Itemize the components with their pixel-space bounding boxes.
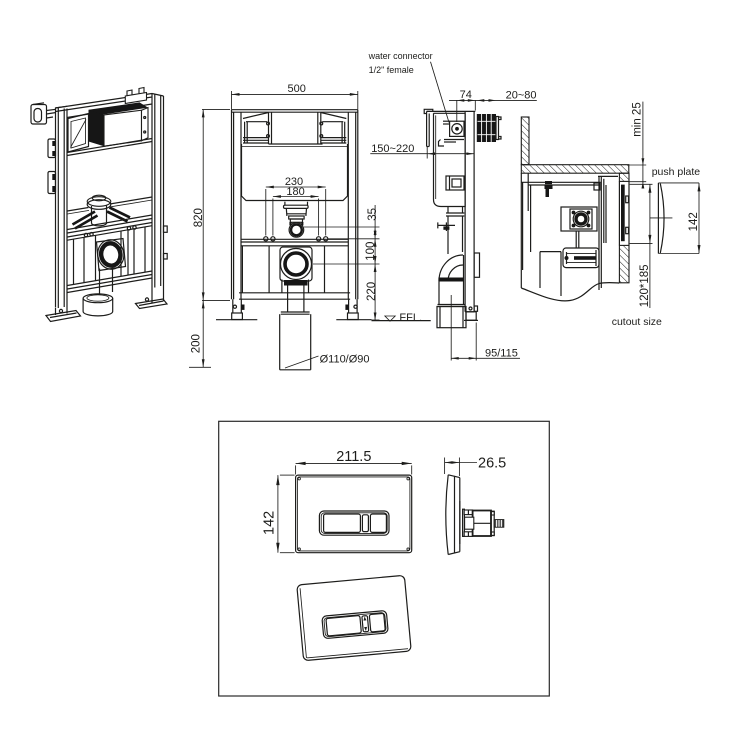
svg-text:push plate: push plate xyxy=(652,166,701,178)
svg-text:142: 142 xyxy=(261,511,277,535)
svg-text:500: 500 xyxy=(288,83,306,95)
svg-text:Ø110/Ø90: Ø110/Ø90 xyxy=(320,354,370,366)
svg-text:26.5: 26.5 xyxy=(478,456,506,472)
svg-text:200: 200 xyxy=(191,334,203,353)
svg-text:100: 100 xyxy=(365,242,377,261)
svg-text:142: 142 xyxy=(688,212,700,231)
svg-text:20~80: 20~80 xyxy=(506,89,537,101)
svg-text:820: 820 xyxy=(193,208,205,227)
svg-text:211.5: 211.5 xyxy=(336,449,371,465)
svg-text:120*185: 120*185 xyxy=(639,264,651,307)
svg-text:35: 35 xyxy=(367,208,379,221)
svg-text:180: 180 xyxy=(286,186,304,198)
svg-text:220: 220 xyxy=(366,282,378,301)
svg-text:74: 74 xyxy=(460,89,472,101)
svg-text:FFL.: FFL. xyxy=(399,312,422,324)
svg-text:min 25: min 25 xyxy=(631,102,643,137)
svg-text:1/2" female: 1/2" female xyxy=(369,65,414,75)
svg-text:95/115: 95/115 xyxy=(485,347,518,359)
svg-text:cutout size: cutout size xyxy=(612,316,662,328)
svg-text:water connector: water connector xyxy=(368,51,433,61)
